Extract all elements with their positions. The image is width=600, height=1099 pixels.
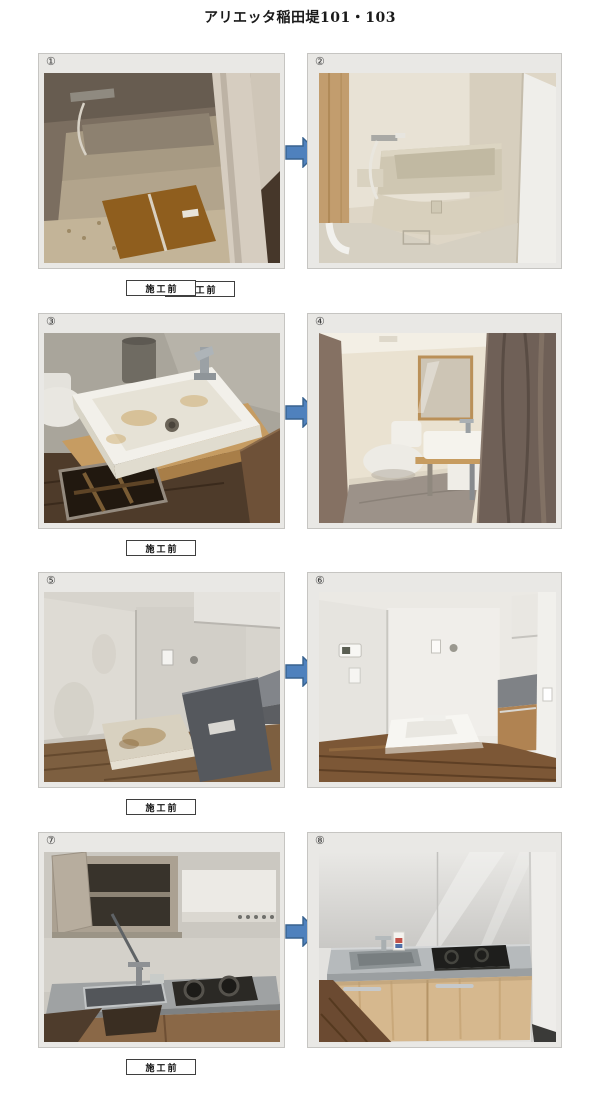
photo-number: ③ bbox=[46, 316, 56, 327]
caption-before: 施工前 bbox=[126, 799, 196, 815]
photo-panel-1-before: ① 施工前 bbox=[38, 53, 285, 269]
photo-row-2: ③ bbox=[0, 313, 600, 573]
photo-number: ② bbox=[315, 56, 325, 67]
photo-number: ⑦ bbox=[46, 835, 56, 846]
photo-row-4: ⑦ bbox=[0, 832, 600, 1092]
renovation-report-page: アリエッタ稲田堤101・103 ① bbox=[0, 0, 600, 1099]
photo-panel-4-after: ④ bbox=[307, 313, 562, 529]
photo-bathtub-renovated bbox=[319, 73, 556, 263]
caption-before: 施工前 bbox=[126, 1059, 196, 1075]
photo-row-3: ⑤ bbox=[0, 572, 600, 832]
photo-number: ⑧ bbox=[315, 835, 325, 846]
photo-panel-8-after: ⑧ bbox=[307, 832, 562, 1048]
photo-number: ⑤ bbox=[46, 575, 56, 586]
photo-kitchen-renovated bbox=[319, 852, 556, 1042]
photo-panel-5-before: ⑤ bbox=[38, 572, 285, 788]
photo-kitchen-old bbox=[44, 852, 280, 1042]
photo-number: ⑥ bbox=[315, 575, 325, 586]
photo-panel-7-before: ⑦ bbox=[38, 832, 285, 1048]
photo-number: ④ bbox=[315, 316, 325, 327]
caption-before: 施工前 bbox=[126, 540, 196, 556]
caption-before: 施工前 bbox=[126, 280, 196, 296]
photo-panel-6-after: ⑥ bbox=[307, 572, 562, 788]
photo-washbasin-dirty bbox=[44, 333, 280, 523]
photo-washroom-renovated bbox=[319, 333, 556, 523]
photo-panel-2-after: ② bbox=[307, 53, 562, 269]
photo-bathtub-dirty bbox=[44, 73, 280, 263]
photo-laundry-corner-renovated bbox=[319, 592, 556, 782]
page-title: アリエッタ稲田堤101・103 bbox=[0, 7, 600, 27]
photo-panel-3-before: ③ bbox=[38, 313, 285, 529]
photo-laundry-corner-old bbox=[44, 592, 280, 782]
photo-number: ① bbox=[46, 56, 56, 67]
photo-row-1: ① 施工前 bbox=[0, 53, 600, 313]
